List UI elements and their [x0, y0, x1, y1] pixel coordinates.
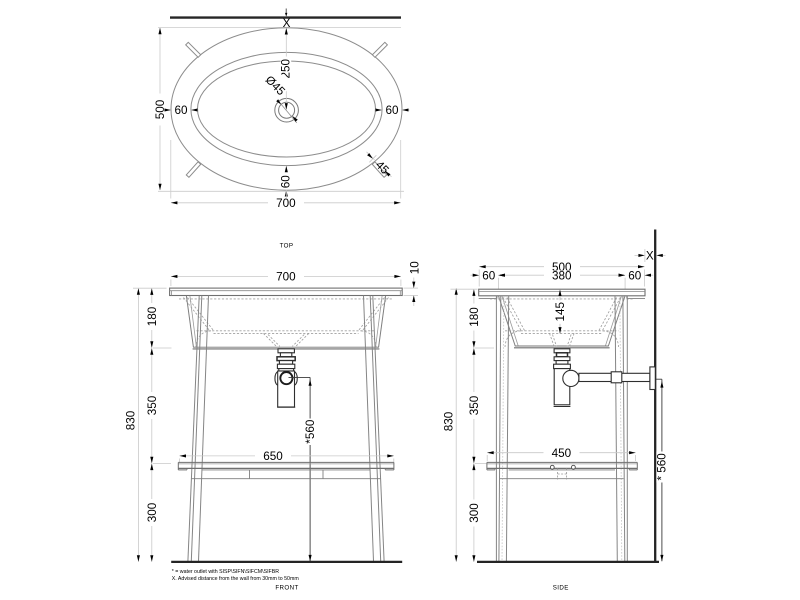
svg-text:60: 60 [385, 104, 399, 117]
svg-text:145: 145 [554, 302, 567, 322]
svg-text:350: 350 [468, 395, 481, 415]
svg-text:X: X [646, 250, 654, 263]
svg-text:10: 10 [409, 261, 422, 275]
svg-text:180: 180 [468, 307, 481, 327]
svg-text:450: 450 [552, 447, 572, 460]
svg-text:* = water outlet with SISP\SIF: * = water outlet with SISP\SIFN\SIFCM\SI… [172, 569, 279, 575]
svg-text:SIDE: SIDE [553, 584, 569, 591]
svg-text:TOP: TOP [280, 243, 294, 250]
svg-text:350: 350 [146, 395, 159, 415]
svg-text:380: 380 [552, 270, 572, 283]
svg-text:FRONT: FRONT [275, 584, 298, 591]
svg-text:* 560: * 560 [656, 453, 669, 481]
svg-text:700: 700 [276, 197, 296, 210]
svg-text:830: 830 [125, 410, 138, 430]
svg-text:700: 700 [276, 271, 296, 284]
svg-text:300: 300 [146, 502, 159, 522]
svg-text:*560: *560 [304, 419, 317, 444]
svg-text:60: 60 [174, 104, 188, 117]
svg-text:180: 180 [146, 306, 159, 326]
svg-text:650: 650 [263, 450, 283, 463]
svg-text:60: 60 [628, 270, 642, 283]
svg-text:60: 60 [279, 175, 292, 189]
svg-text:830: 830 [442, 411, 455, 431]
svg-text:60: 60 [482, 270, 496, 283]
svg-text:X. Advised distance from the w: X. Advised distance from the wall from 3… [172, 576, 299, 582]
svg-text:300: 300 [468, 503, 481, 523]
